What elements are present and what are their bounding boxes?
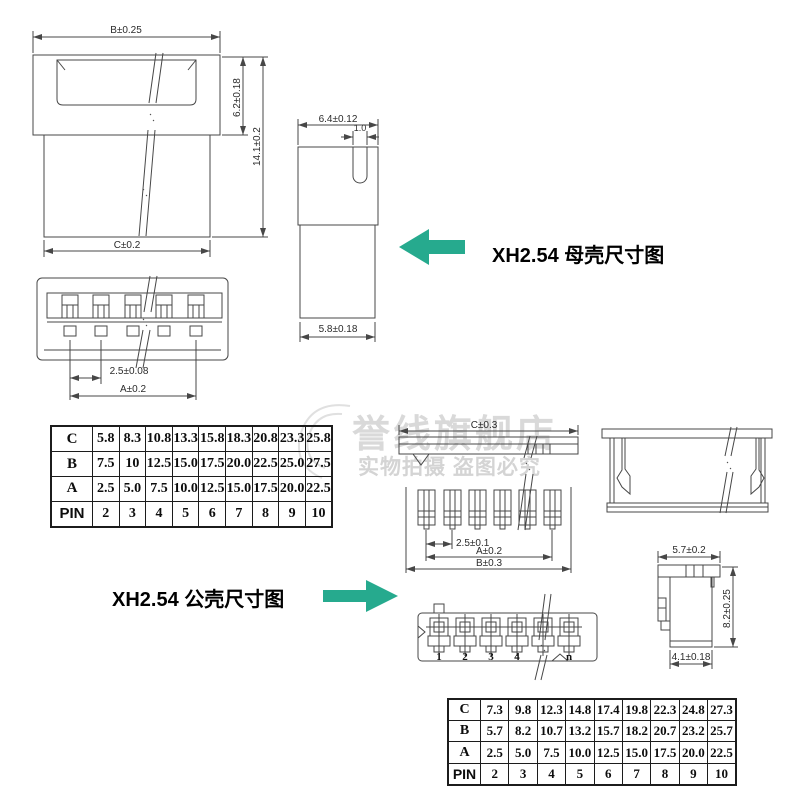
value-cell: 5.8 [93, 426, 120, 452]
dim-label-female-upper-height: 6.2±0.18 [232, 78, 243, 117]
male-section-title: XH2.54 公壳尺寸图 [112, 583, 284, 612]
male-pins [418, 490, 561, 529]
dim-label-male-side-bottom: 4.1±0.18 [672, 652, 711, 663]
male-bottom-view-drawing: 1 2 3 4 n [418, 594, 597, 680]
value-cell: 13.3 [172, 426, 199, 452]
pin-number-3: 3 [488, 651, 494, 663]
value-cell: 5.7 [481, 721, 509, 742]
value-cell: 10 [305, 501, 332, 527]
value-cell: 25.7 [708, 721, 737, 742]
value-cell: 10.8 [146, 426, 173, 452]
value-cell: 8.3 [119, 426, 146, 452]
value-cell: 17.5 [651, 742, 679, 763]
male-side-view-with-pins-drawing: C±0.3 2.5±0.1 A±0.2 B±0.3 [399, 420, 578, 573]
row-header-cell: C [448, 699, 481, 721]
value-cell: 7.5 [537, 742, 565, 763]
pin-number-4: 4 [514, 651, 520, 663]
male-cross-section-drawing [602, 427, 772, 513]
value-cell: 8 [651, 763, 679, 785]
value-cell: 12.5 [199, 476, 226, 501]
value-cell: 20.0 [226, 452, 253, 477]
dim-label-male-side-height: 8.2±0.25 [722, 589, 733, 628]
teal-arrow-left-icon [399, 229, 465, 265]
value-cell: 3 [509, 763, 537, 785]
female-front-view-drawing: B±0.25 C±0.2 6.2±0.18 14.1±0.2 [33, 25, 268, 257]
value-cell: 5.0 [509, 742, 537, 763]
value-cell: 5.0 [119, 476, 146, 501]
value-cell: 24.8 [679, 699, 707, 721]
value-cell: 4 [537, 763, 565, 785]
row-header-cell: B [448, 721, 481, 742]
table-row: PIN2345678910 [51, 501, 332, 527]
female-pin-view-drawing: 2.5±0.08 A±0.2 [37, 276, 228, 400]
female-dimension-table: C5.88.310.813.315.818.320.823.325.8B7.51… [50, 425, 333, 528]
table-row: C5.88.310.813.315.818.320.823.325.8 [51, 426, 332, 452]
value-cell: 22.5 [305, 476, 332, 501]
value-cell: 20.8 [252, 426, 279, 452]
value-cell: 7 [622, 763, 650, 785]
dim-label-male-span: A±0.2 [476, 546, 502, 557]
value-cell: 5 [172, 501, 199, 527]
value-cell: 18.3 [226, 426, 253, 452]
value-cell: 17.5 [252, 476, 279, 501]
value-cell: 15.0 [172, 452, 199, 477]
value-cell: 25.0 [279, 452, 306, 477]
value-cell: 8.2 [509, 721, 537, 742]
value-cell: 15.8 [199, 426, 226, 452]
teal-arrow-right-icon [323, 580, 398, 612]
female-side-view-drawing: 6.4±0.12 1.0 5.8±0.18 [298, 114, 379, 342]
value-cell: 18.2 [622, 721, 650, 742]
row-header-cell: C [51, 426, 93, 452]
value-cell: 15.7 [594, 721, 622, 742]
value-cell: 22.3 [651, 699, 679, 721]
value-cell: 22.5 [252, 452, 279, 477]
value-cell: 7.3 [481, 699, 509, 721]
cad-linework: B±0.25 C±0.2 6.2±0.18 14.1±0.2 6.4±0.12 [0, 0, 800, 800]
value-cell: 10 [119, 452, 146, 477]
dim-label-female-c: C±0.2 [114, 240, 141, 251]
value-cell: 23.3 [279, 426, 306, 452]
value-cell: 9 [679, 763, 707, 785]
dim-label-female-pitch: 2.5±0.08 [110, 366, 149, 377]
value-cell: 23.2 [679, 721, 707, 742]
value-cell: 17.4 [594, 699, 622, 721]
value-cell: 13.2 [566, 721, 594, 742]
value-cell: 12.5 [594, 742, 622, 763]
row-header-cell: PIN [51, 501, 93, 527]
value-cell: 10.7 [537, 721, 565, 742]
female-pin-slots [62, 295, 204, 336]
dim-label-female-b: B±0.25 [110, 25, 142, 36]
value-cell: 19.8 [622, 699, 650, 721]
value-cell: 2 [481, 763, 509, 785]
dim-label-male-side-top: 5.7±0.2 [672, 545, 706, 556]
table-row: A2.55.07.510.012.515.017.520.022.5 [448, 742, 736, 763]
dim-label-female-slot: 1.0 [354, 123, 367, 133]
value-cell: 12.5 [146, 452, 173, 477]
value-cell: 14.8 [566, 699, 594, 721]
row-header-cell: A [448, 742, 481, 763]
value-cell: 7.5 [146, 476, 173, 501]
value-cell: 12.3 [537, 699, 565, 721]
value-cell: 10.0 [566, 742, 594, 763]
pin-number-1: 1 [436, 651, 442, 663]
dim-label-female-side-top: 6.4±0.12 [319, 114, 358, 125]
value-cell: 5 [566, 763, 594, 785]
product-diagram-image: 誉线旗舰店 实物拍摄 盗图必究 B±0.25 [0, 0, 800, 800]
value-cell: 20.7 [651, 721, 679, 742]
table-row: PIN2345678910 [448, 763, 736, 785]
value-cell: 4 [146, 501, 173, 527]
value-cell: 10 [708, 763, 737, 785]
pin-number-2: 2 [462, 651, 468, 663]
dim-label-female-span: A±0.2 [120, 384, 146, 395]
dim-label-male-c: C±0.3 [471, 420, 498, 431]
pin-number-n: n [566, 651, 572, 663]
value-cell: 7 [226, 501, 253, 527]
value-cell: 8 [252, 501, 279, 527]
value-cell: 2.5 [481, 742, 509, 763]
value-cell: 27.5 [305, 452, 332, 477]
value-cell: 20.0 [679, 742, 707, 763]
row-header-cell: B [51, 452, 93, 477]
male-dimension-table: C7.39.812.314.817.419.822.324.827.3B5.78… [447, 698, 737, 786]
value-cell: 9 [279, 501, 306, 527]
value-cell: 2.5 [93, 476, 120, 501]
value-cell: 7.5 [93, 452, 120, 477]
table-row: B7.51012.515.017.520.022.525.027.5 [51, 452, 332, 477]
value-cell: 6 [199, 501, 226, 527]
female-section-title: XH2.54 母壳尺寸图 [492, 239, 664, 268]
male-side-view-drawing: 5.7±0.2 8.2±0.25 4.1±0.18 [658, 545, 738, 669]
table-row: A2.55.07.510.012.515.017.520.022.5 [51, 476, 332, 501]
value-cell: 2 [93, 501, 120, 527]
table-row: C7.39.812.314.817.419.822.324.827.3 [448, 699, 736, 721]
value-cell: 22.5 [708, 742, 737, 763]
dim-label-male-overall: B±0.3 [476, 558, 502, 569]
row-header-cell: A [51, 476, 93, 501]
table-row: B5.78.210.713.215.718.220.723.225.7 [448, 721, 736, 742]
dim-label-female-total-height: 14.1±0.2 [252, 127, 263, 166]
value-cell: 25.8 [305, 426, 332, 452]
dim-label-female-side-bottom: 5.8±0.18 [319, 324, 358, 335]
value-cell: 3 [119, 501, 146, 527]
value-cell: 10.0 [172, 476, 199, 501]
value-cell: 15.0 [622, 742, 650, 763]
row-header-cell: PIN [448, 763, 481, 785]
value-cell: 6 [594, 763, 622, 785]
value-cell: 20.0 [279, 476, 306, 501]
male-bottom-pin-cells [426, 614, 582, 656]
value-cell: 27.3 [708, 699, 737, 721]
value-cell: 15.0 [226, 476, 253, 501]
value-cell: 17.5 [199, 452, 226, 477]
value-cell: 9.8 [509, 699, 537, 721]
